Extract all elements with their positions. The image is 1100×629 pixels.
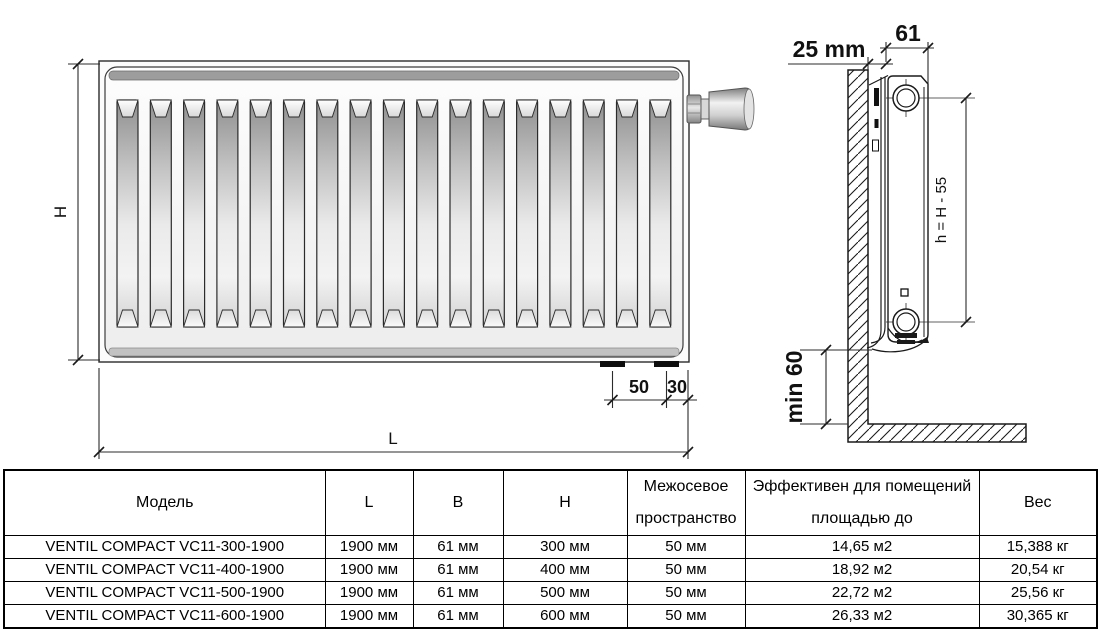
col-header-model: Модель (4, 470, 325, 536)
spec-table: Модель L B H Межосевое пространство Эффе… (3, 469, 1098, 629)
panel-top-band (109, 71, 679, 80)
height-label: H (51, 206, 70, 218)
radiator-section (117, 100, 138, 327)
panel-bottom-band (109, 348, 679, 356)
radiator-section (483, 100, 504, 327)
side-view: 25 mm 61 h = H - 55 min 60 (781, 20, 1026, 442)
cell-depth: 61 мм (413, 582, 503, 605)
cell-height: 500 мм (503, 582, 627, 605)
col-header-h: H (503, 470, 627, 536)
radiator-section (350, 100, 371, 327)
cell-weight: 30,365 кг (979, 605, 1097, 629)
radiator-sections (117, 100, 671, 327)
col-header-b: B (413, 470, 503, 536)
table-row: VENTIL COMPACT VC11-300-1900 1900 мм 61 … (4, 536, 1097, 559)
col-header-effective-area: Эффективен для помещений площадью до (745, 470, 979, 536)
cell-depth: 61 мм (413, 559, 503, 582)
cell-length: 1900 мм (325, 582, 413, 605)
depth-label: 61 (895, 20, 921, 46)
table-row: VENTIL COMPACT VC11-500-1900 1900 мм 61 … (4, 582, 1097, 605)
radiator-side-body (888, 76, 928, 342)
cell-weight: 25,56 кг (979, 582, 1097, 605)
dimension-stub-offsets: 50 30 (604, 371, 697, 408)
cell-depth: 61 мм (413, 605, 503, 629)
cell-length: 1900 мм (325, 536, 413, 559)
radiator-section (517, 100, 538, 327)
cell-model: VENTIL COMPACT VC11-400-1900 (4, 559, 325, 582)
radiator-section (450, 100, 471, 327)
length-label: L (388, 429, 397, 448)
cell-length: 1900 мм (325, 559, 413, 582)
dimension-wall-gap: 25 mm (788, 36, 893, 70)
col-header-axial-spacing: Межосевое пространство (627, 470, 745, 536)
stub-edge-label: 30 (667, 377, 687, 397)
radiator-section (284, 100, 305, 327)
technical-drawing: H L 50 30 (0, 0, 1100, 466)
col-header-weight: Вес (979, 470, 1097, 536)
cell-model: VENTIL COMPACT VC11-300-1900 (4, 536, 325, 559)
dimension-length: L (94, 368, 693, 459)
thermostatic-valve-icon (687, 88, 754, 130)
cell-height: 400 мм (503, 559, 627, 582)
cell-axial-spacing: 50 мм (627, 582, 745, 605)
body-detail-square (901, 289, 908, 296)
radiator-section (417, 100, 438, 327)
cell-axial-spacing: 50 мм (627, 605, 745, 629)
stub-spacing-label: 50 (629, 377, 649, 397)
cell-effective-area: 22,72 м2 (745, 582, 979, 605)
table-row: VENTIL COMPACT VC11-600-1900 1900 мм 61 … (4, 605, 1097, 629)
radiator-section (650, 100, 671, 327)
table-header-row: Модель L B H Межосевое пространство Эффе… (4, 470, 1097, 536)
col-header-l: L (325, 470, 413, 536)
floor-clearance-label: min 60 (781, 351, 807, 424)
cell-axial-spacing: 50 мм (627, 536, 745, 559)
cell-model: VENTIL COMPACT VC11-500-1900 (4, 582, 325, 605)
radiator-section (250, 100, 271, 327)
table-row: VENTIL COMPACT VC11-400-1900 1900 мм 61 … (4, 559, 1097, 582)
cell-weight: 20,54 кг (979, 559, 1097, 582)
radiator-section (583, 100, 604, 327)
cell-effective-area: 14,65 м2 (745, 536, 979, 559)
front-view: H L 50 30 (51, 59, 754, 459)
cell-weight: 15,388 кг (979, 536, 1097, 559)
connection-height-label: h = H - 55 (933, 177, 950, 243)
radiator-section (550, 100, 571, 327)
radiator-section (617, 100, 638, 327)
dimension-connection-height: h = H - 55 (933, 93, 971, 327)
cell-height: 300 мм (503, 536, 627, 559)
cell-depth: 61 мм (413, 536, 503, 559)
radiator-section (184, 100, 205, 327)
cell-model: VENTIL COMPACT VC11-600-1900 (4, 605, 325, 629)
cell-effective-area: 18,92 м2 (745, 559, 979, 582)
dimension-height: H (51, 59, 100, 365)
radiator-section (317, 100, 338, 327)
radiator-section (217, 100, 238, 327)
radiator-section (150, 100, 171, 327)
cell-length: 1900 мм (325, 605, 413, 629)
cell-effective-area: 26,33 м2 (745, 605, 979, 629)
wall-gap-label: 25 mm (793, 36, 866, 62)
cell-axial-spacing: 50 мм (627, 559, 745, 582)
cell-height: 600 мм (503, 605, 627, 629)
radiator-section (383, 100, 404, 327)
